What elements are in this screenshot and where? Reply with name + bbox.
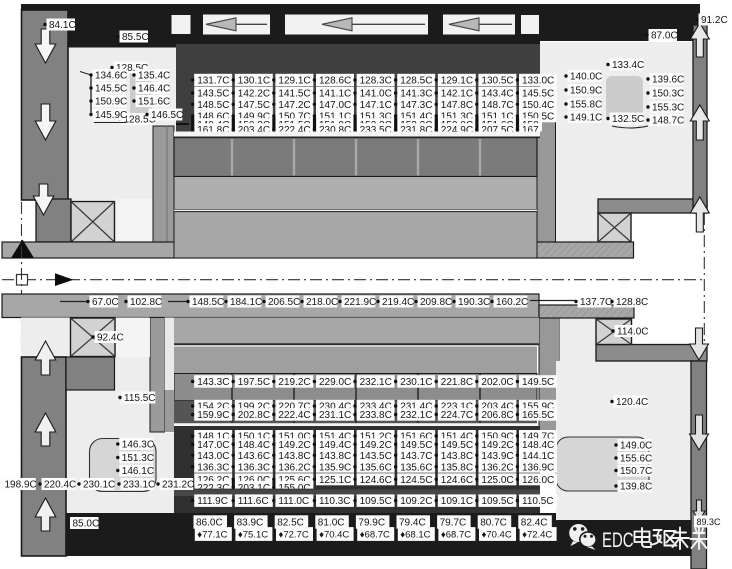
svg-text:143.8C: 143.8C: [441, 451, 473, 462]
svg-text:209.8C: 209.8C: [420, 297, 452, 308]
svg-text:139.8C: 139.8C: [620, 482, 652, 493]
svg-text:231.1C: 231.1C: [319, 410, 351, 421]
svg-text:155.3C: 155.3C: [652, 103, 684, 114]
svg-text:143.0C: 143.0C: [197, 451, 229, 462]
svg-text:♦68.7C: ♦68.7C: [441, 530, 471, 541]
svg-text:125.0C: 125.0C: [481, 475, 513, 486]
svg-text:79.9C: 79.9C: [358, 518, 385, 529]
svg-text:144.1C: 144.1C: [522, 451, 554, 462]
svg-text:114.0C: 114.0C: [617, 327, 649, 338]
svg-text:146.5C: 146.5C: [151, 110, 183, 121]
svg-text:136.3C: 136.3C: [197, 462, 229, 473]
svg-text:150.4C: 150.4C: [522, 100, 554, 111]
svg-text:130.1C: 130.1C: [238, 76, 270, 87]
svg-text:141.5C: 141.5C: [278, 89, 310, 100]
svg-text:139.6C: 139.6C: [652, 75, 684, 86]
svg-text:82.4C: 82.4C: [521, 518, 548, 529]
svg-text:146.1C: 146.1C: [122, 466, 154, 477]
svg-text:221.9C: 221.9C: [344, 297, 376, 308]
svg-text:222.4C: 222.4C: [278, 410, 310, 421]
svg-text:145.5C: 145.5C: [522, 89, 554, 100]
svg-text:86.0C: 86.0C: [196, 518, 223, 529]
svg-text:141.0C: 141.0C: [360, 89, 392, 100]
svg-text:135.6C: 135.6C: [360, 462, 392, 473]
svg-text:147.8C: 147.8C: [441, 100, 473, 111]
svg-text:135.9C: 135.9C: [319, 462, 351, 473]
svg-text:143.4C: 143.4C: [481, 89, 513, 100]
svg-text:81.0C: 81.0C: [318, 518, 345, 529]
svg-text:148.7C: 148.7C: [481, 100, 513, 111]
svg-text:124.6C: 124.6C: [441, 475, 473, 486]
svg-text:206.5C: 206.5C: [268, 297, 300, 308]
svg-text:148.5C: 148.5C: [192, 297, 224, 308]
svg-text:83.9C: 83.9C: [237, 518, 264, 529]
svg-text:91.2C: 91.2C: [701, 15, 728, 26]
svg-text:♦75.1C: ♦75.1C: [238, 530, 268, 541]
svg-text:110.5C: 110.5C: [522, 496, 554, 507]
svg-text:160.2C: 160.2C: [496, 297, 528, 308]
svg-text:149.5C: 149.5C: [522, 377, 554, 388]
svg-text:148.5C: 148.5C: [197, 100, 229, 111]
svg-text:♦77.1C: ♦77.1C: [197, 530, 227, 541]
svg-text:221.8C: 221.8C: [441, 377, 473, 388]
svg-text:146.3C: 146.3C: [122, 440, 154, 451]
svg-text:109.5C: 109.5C: [360, 496, 392, 507]
svg-text:143.8C: 143.8C: [278, 451, 310, 462]
svg-text:124.5C: 124.5C: [400, 475, 432, 486]
svg-text:202.0C: 202.0C: [481, 377, 513, 388]
svg-text:133.4C: 133.4C: [612, 60, 644, 71]
svg-text:219.4C: 219.4C: [382, 297, 414, 308]
svg-text:220.4C: 220.4C: [44, 480, 76, 491]
svg-text:125.1C: 125.1C: [319, 475, 351, 486]
svg-text:136.9C: 136.9C: [522, 462, 554, 473]
svg-text:135.6C: 135.6C: [400, 462, 432, 473]
svg-text:79.7C: 79.7C: [440, 518, 467, 529]
svg-text:141.1C: 141.1C: [319, 89, 351, 100]
svg-text:128.3C: 128.3C: [360, 76, 392, 87]
svg-text:143.9C: 143.9C: [481, 451, 513, 462]
svg-text:♦70.4C: ♦70.4C: [319, 530, 349, 541]
svg-text:230.1C: 230.1C: [400, 377, 432, 388]
svg-text:232.1C: 232.1C: [360, 377, 392, 388]
svg-text:135.4C: 135.4C: [138, 71, 170, 82]
svg-text:155.8C: 155.8C: [570, 100, 602, 111]
svg-text:136.3C: 136.3C: [238, 462, 270, 473]
svg-text:145.9C: 145.9C: [95, 110, 127, 121]
svg-text:184.1C: 184.1C: [230, 297, 262, 308]
svg-text:136.2C: 136.2C: [481, 462, 513, 473]
svg-text:147.2C: 147.2C: [278, 100, 310, 111]
svg-text:231.2C: 231.2C: [162, 480, 194, 491]
svg-text:♦72.4C: ♦72.4C: [522, 530, 552, 541]
svg-text:136.2C: 136.2C: [278, 462, 310, 473]
svg-text:135.8C: 135.8C: [441, 462, 473, 473]
svg-text:124.6C: 124.6C: [360, 475, 392, 486]
svg-text:67.0C: 67.0C: [92, 297, 119, 308]
svg-text:165.5C: 165.5C: [522, 410, 554, 421]
svg-text:82.5C: 82.5C: [277, 518, 304, 529]
svg-text:190.3C: 190.3C: [458, 297, 490, 308]
svg-text:109.5C: 109.5C: [481, 496, 513, 507]
svg-text:232.1C: 232.1C: [400, 410, 432, 421]
svg-text:137.7C: 137.7C: [580, 297, 612, 308]
svg-text:89.3C: 89.3C: [697, 517, 722, 527]
svg-text:111.0C: 111.0C: [278, 496, 309, 507]
svg-text:230.1C: 230.1C: [83, 480, 115, 491]
svg-text:129.1C: 129.1C: [278, 76, 310, 87]
svg-text:♦72.7C: ♦72.7C: [279, 530, 309, 541]
svg-text:128.5C: 128.5C: [400, 76, 432, 87]
svg-text:148.7C: 148.7C: [652, 116, 684, 127]
svg-text:115.5C: 115.5C: [124, 393, 156, 404]
svg-text:233.1C: 233.1C: [123, 480, 155, 491]
svg-text:142.1C: 142.1C: [441, 89, 473, 100]
svg-text:109.2C: 109.2C: [400, 496, 432, 507]
svg-text:159.9C: 159.9C: [197, 410, 229, 421]
svg-text:233.8C: 233.8C: [360, 410, 392, 421]
svg-text:150.3C: 150.3C: [652, 89, 684, 100]
svg-text:151.3C: 151.3C: [122, 453, 154, 464]
svg-text:140.0C: 140.0C: [570, 72, 602, 83]
svg-text:133.0C: 133.0C: [522, 76, 554, 87]
svg-text:143.3C: 143.3C: [197, 377, 229, 388]
svg-text:206.8C: 206.8C: [481, 410, 513, 421]
svg-text:87.0C: 87.0C: [651, 31, 678, 42]
svg-text:134.6C: 134.6C: [95, 71, 127, 82]
svg-text:130.5C: 130.5C: [481, 76, 513, 87]
svg-text:110.3C: 110.3C: [319, 496, 351, 507]
svg-text:150.7C: 150.7C: [620, 466, 652, 477]
svg-text:143.7C: 143.7C: [400, 451, 432, 462]
svg-text:147.1C: 147.1C: [360, 100, 392, 111]
svg-text:218.0C: 218.0C: [306, 297, 338, 308]
svg-text:150.9C: 150.9C: [95, 97, 127, 108]
svg-text:145.5C: 145.5C: [95, 84, 127, 95]
svg-text:150.9C: 150.9C: [570, 86, 602, 97]
svg-text:129.1C: 129.1C: [441, 76, 473, 87]
svg-text:149.0C: 149.0C: [620, 441, 652, 452]
svg-text:198.9C: 198.9C: [5, 480, 37, 491]
svg-text:197.5C: 197.5C: [238, 377, 270, 388]
svg-text:85.5C: 85.5C: [122, 32, 149, 43]
svg-text:141.3C: 141.3C: [400, 89, 432, 100]
svg-text:131.7C: 131.7C: [197, 76, 229, 87]
svg-text:219.2C: 219.2C: [278, 377, 310, 388]
svg-text:80.7C: 80.7C: [480, 518, 507, 529]
svg-text:147.3C: 147.3C: [400, 100, 432, 111]
svg-text:126.0C: 126.0C: [522, 475, 554, 486]
svg-text:♦68.1C: ♦68.1C: [400, 530, 430, 541]
svg-text:147.5C: 147.5C: [238, 100, 270, 111]
svg-text:111.6C: 111.6C: [238, 496, 269, 507]
svg-text:132.5C: 132.5C: [612, 114, 644, 125]
svg-text:143.8C: 143.8C: [319, 451, 351, 462]
svg-text:128.8C: 128.8C: [616, 297, 648, 308]
svg-text:143.6C: 143.6C: [238, 451, 270, 462]
svg-text:147.0C: 147.0C: [319, 100, 351, 111]
svg-text:155.6C: 155.6C: [620, 454, 652, 465]
svg-text:143.5C: 143.5C: [360, 451, 392, 462]
svg-text:128.6C: 128.6C: [319, 76, 351, 87]
svg-text:142.2C: 142.2C: [238, 89, 270, 100]
svg-text:109.1C: 109.1C: [441, 496, 473, 507]
svg-text:143.5C: 143.5C: [197, 89, 229, 100]
svg-text:79.4C: 79.4C: [399, 518, 426, 529]
svg-text:149.1C: 149.1C: [570, 113, 602, 124]
svg-text:85.0C: 85.0C: [73, 519, 100, 530]
svg-text:♦70.4C: ♦70.4C: [482, 530, 512, 541]
svg-text:92.4C: 92.4C: [97, 333, 124, 344]
svg-text:111.9C: 111.9C: [197, 496, 228, 507]
svg-text:146.4C: 146.4C: [138, 84, 170, 95]
svg-text:151.6C: 151.6C: [138, 97, 170, 108]
svg-text:224.7C: 224.7C: [441, 410, 473, 421]
svg-text:202.8C: 202.8C: [238, 410, 270, 421]
svg-text:120.4C: 120.4C: [616, 397, 648, 408]
svg-text:♦68.7C: ♦68.7C: [360, 530, 390, 541]
svg-text:102.8C: 102.8C: [130, 297, 162, 308]
svg-text:229.0C: 229.0C: [319, 377, 351, 388]
svg-text:84.1C: 84.1C: [49, 20, 76, 31]
svg-text:EDC: EDC: [602, 529, 634, 552]
